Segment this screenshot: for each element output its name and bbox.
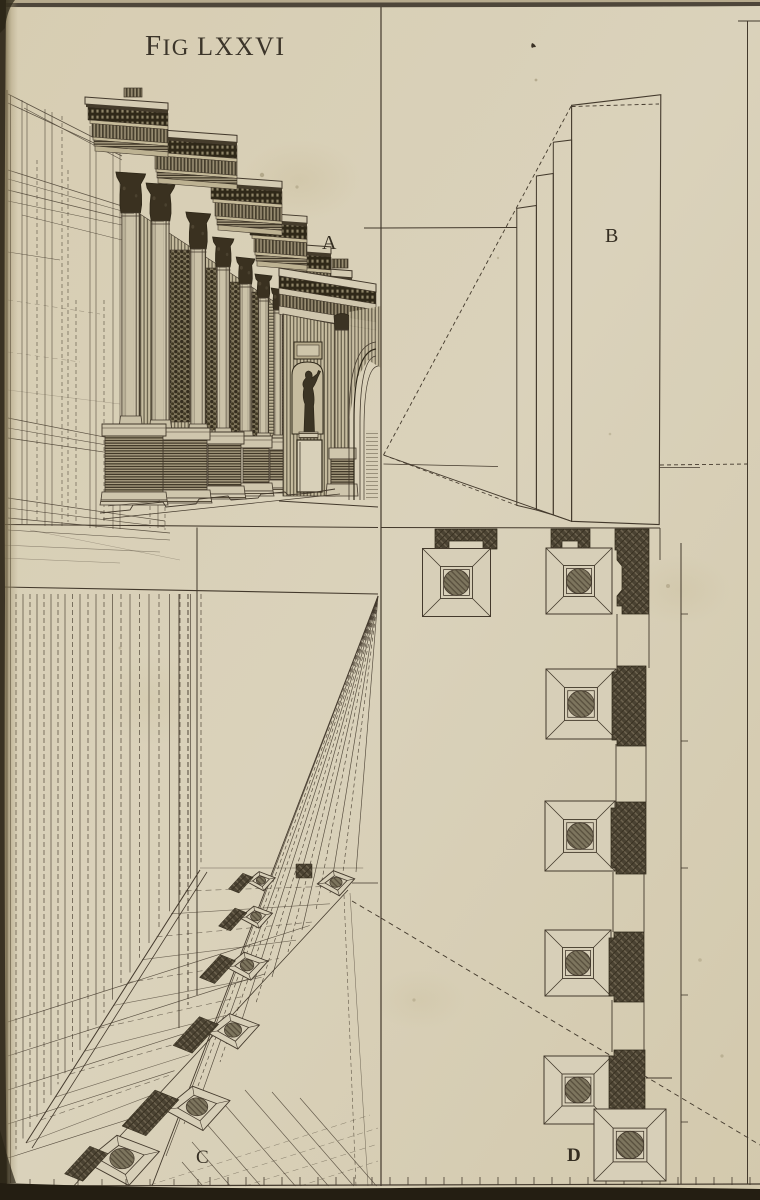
svg-text:B: B xyxy=(605,225,618,247)
svg-text:FIG LXXVI: FIG LXXVI xyxy=(145,30,286,62)
svg-text:D: D xyxy=(567,1145,581,1166)
svg-text:C: C xyxy=(196,1147,209,1168)
svg-text:A: A xyxy=(322,232,337,254)
